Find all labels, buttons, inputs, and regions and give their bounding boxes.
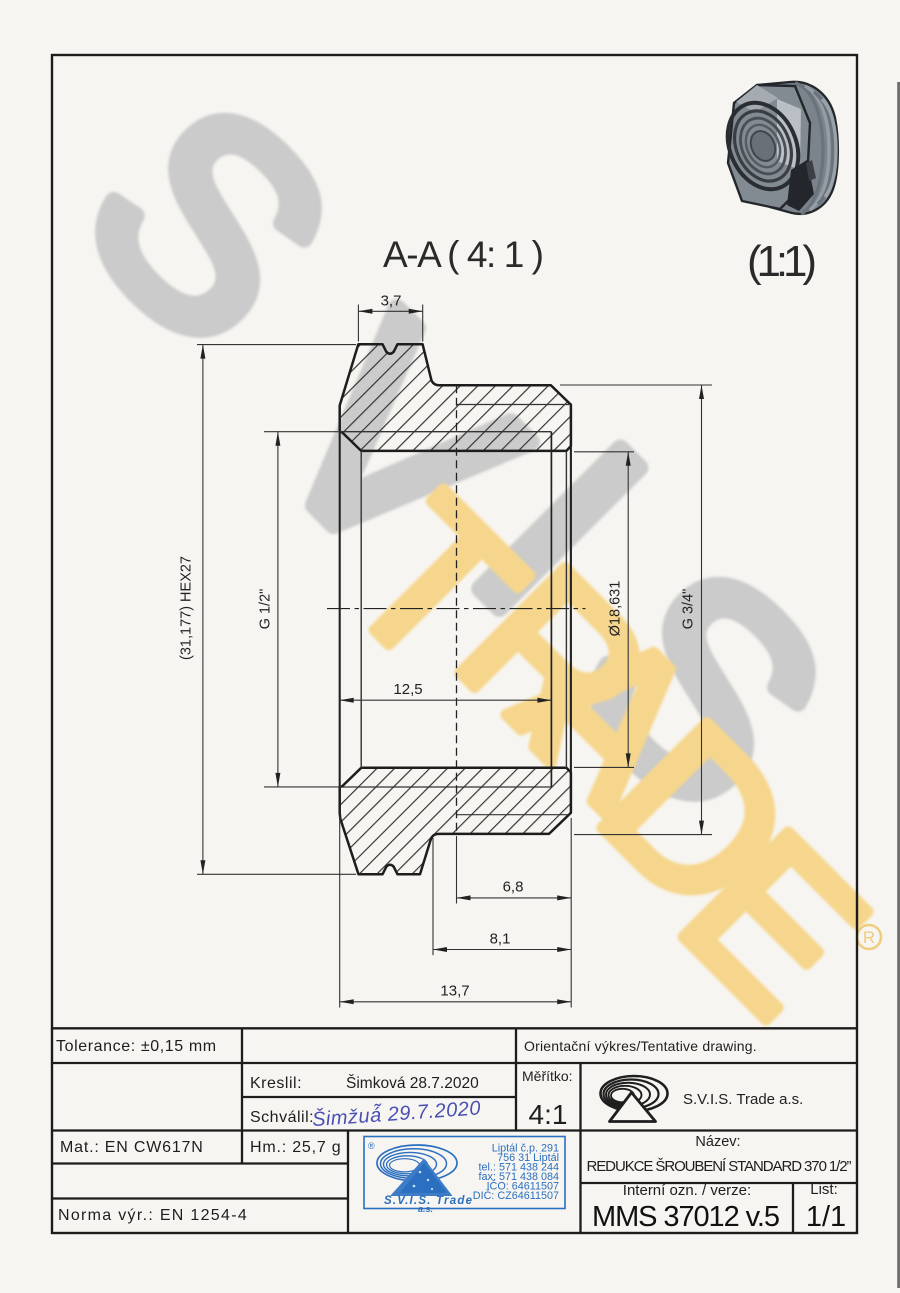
svg-text:Mat.: EN CW617N: Mat.: EN CW617N xyxy=(60,1139,204,1156)
svg-text:Tolerance: ±0,15 mm: Tolerance: ±0,15 mm xyxy=(56,1038,217,1055)
svg-text:Hm.: 25,7 g: Hm.: 25,7 g xyxy=(250,1139,342,1156)
svg-text:Schválil:: Schválil: xyxy=(250,1109,314,1126)
svg-text:3,7: 3,7 xyxy=(381,293,402,310)
svg-text:Měřítko:: Měřítko: xyxy=(522,1068,573,1084)
svg-text:(31,177) HEX27: (31,177) HEX27 xyxy=(179,556,195,660)
svg-text:a.s.: a.s. xyxy=(418,1204,433,1214)
svg-text:Orientační výkres/Tentative dr: Orientační výkres/Tentative drawing. xyxy=(524,1038,757,1054)
svg-text:Název:: Název: xyxy=(695,1134,740,1150)
svg-text:1/1: 1/1 xyxy=(806,1201,846,1233)
svg-text:Šimková 28.7.2020: Šimková 28.7.2020 xyxy=(346,1075,479,1092)
svg-text:4:1: 4:1 xyxy=(529,1099,568,1130)
svg-text:Interní ozn. / verze:: Interní ozn. / verze: xyxy=(623,1182,751,1199)
svg-text:8,1: 8,1 xyxy=(490,931,511,948)
svg-text:R: R xyxy=(863,928,875,947)
svg-text:S.V.I.S. Trade a.s.: S.V.I.S. Trade a.s. xyxy=(683,1091,803,1108)
svg-text:Kreslil:: Kreslil: xyxy=(250,1075,302,1092)
svg-text:List:: List: xyxy=(810,1181,838,1198)
svg-text:DIČ: CZ64611507: DIČ: CZ64611507 xyxy=(473,1189,559,1202)
svg-text:A-A ( 4: 1 ): A-A ( 4: 1 ) xyxy=(383,234,544,275)
svg-text:REDUKCE ŠROUBENÍ STANDARD 370: REDUKCE ŠROUBENÍ STANDARD 370 1/2” xyxy=(587,1158,852,1175)
svg-text:13,7: 13,7 xyxy=(440,983,469,1000)
svg-text:Norma výr.: EN 1254-4: Norma výr.: EN 1254-4 xyxy=(58,1207,248,1224)
svg-text:(1:1): (1:1) xyxy=(747,237,817,286)
svg-text:12,5: 12,5 xyxy=(393,681,422,698)
svg-text:Ø18,631: Ø18,631 xyxy=(608,581,624,637)
svg-text:6,8: 6,8 xyxy=(503,879,524,896)
svg-text:G 3/4": G 3/4" xyxy=(681,589,697,630)
svg-text:®: ® xyxy=(368,1141,375,1151)
svg-text:MMS 37012 v.5: MMS 37012 v.5 xyxy=(592,1201,780,1233)
svg-text:G 1/2": G 1/2" xyxy=(258,589,274,630)
